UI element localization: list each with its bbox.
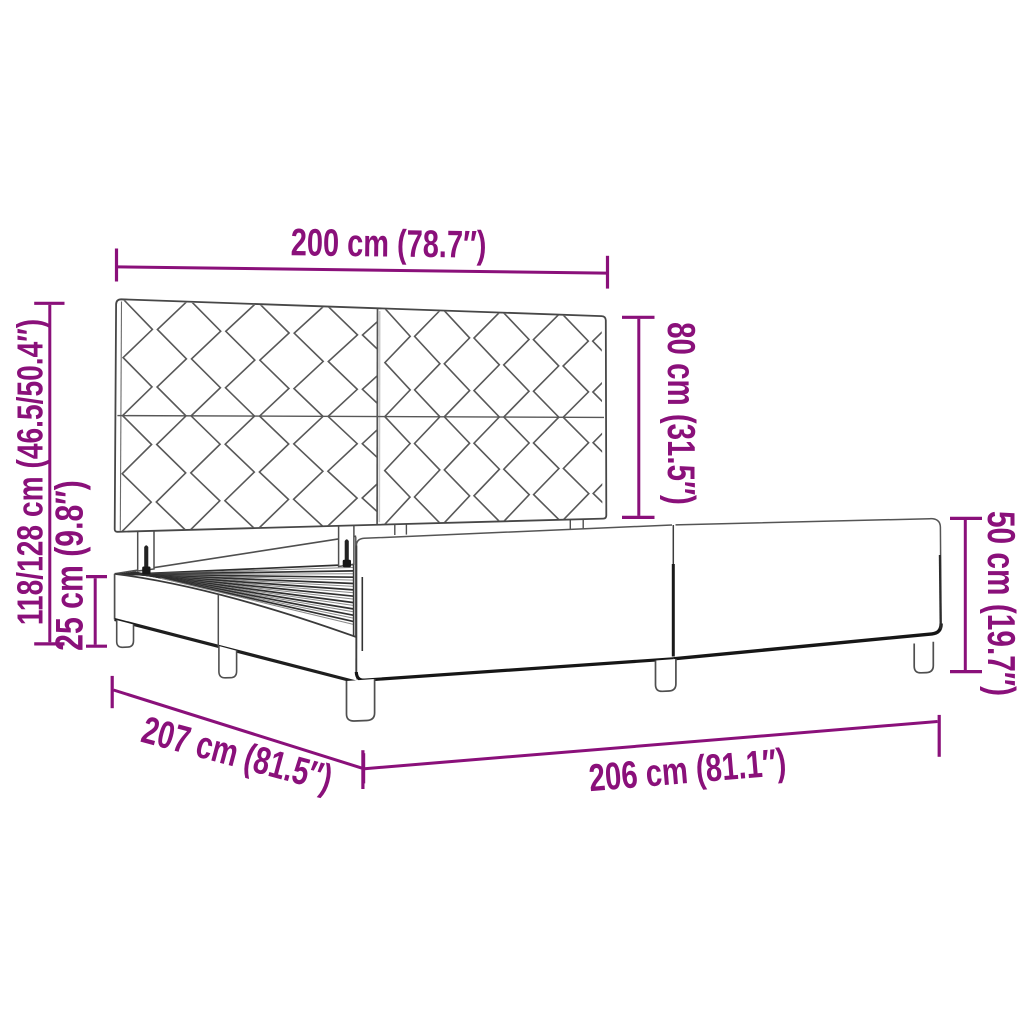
svg-text:118/128 cm (46.5/50.4″): 118/128 cm (46.5/50.4″) [9,319,50,625]
svg-text:80 cm (31.5″): 80 cm (31.5″) [659,322,702,505]
svg-text:200 cm (78.7″): 200 cm (78.7″) [291,221,487,266]
svg-text:25 cm (9.8″): 25 cm (9.8″) [49,480,91,651]
svg-text:50 cm (19.7″): 50 cm (19.7″) [979,511,1021,696]
